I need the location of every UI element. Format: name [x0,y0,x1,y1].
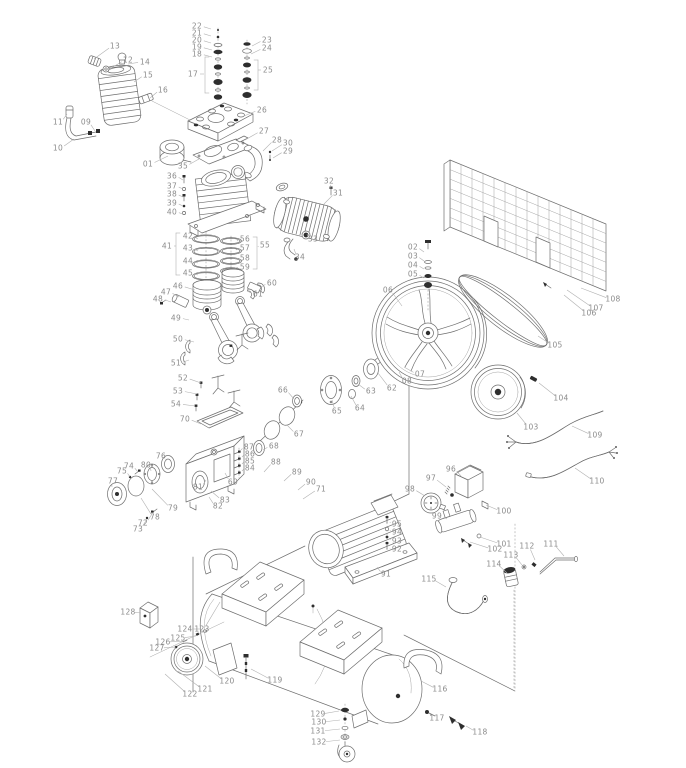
part-label-81: 81 [193,483,203,491]
part-label-39: 39 [167,199,177,207]
part-label-44: 44 [183,257,193,265]
part-label-61: 61 [253,290,263,298]
part-label-128: 128 [120,608,135,616]
part-label-26: 26 [257,106,267,114]
part-label-66: 66 [278,386,288,394]
part-label-121: 121 [197,685,212,693]
part-label-38: 38 [167,190,177,198]
part-label-90: 90 [306,478,316,486]
part-label-15: 15 [143,71,153,79]
part-label-43: 43 [183,244,193,252]
part-label-70: 70 [180,415,190,423]
part-label-91: 91 [381,570,391,578]
part-label-73: 73 [133,525,143,533]
part-label-49: 49 [171,314,181,322]
part-label-88: 88 [271,458,281,466]
part-label-64: 64 [355,404,365,412]
part-label-34: 34 [295,253,305,261]
part-label-48: 48 [153,295,163,303]
part-label-16: 16 [158,86,168,94]
part-label-45: 45 [183,269,193,277]
part-label-115: 115 [421,575,436,583]
part-label-114: 114 [486,560,501,568]
part-label-68: 68 [269,442,279,450]
part-label-63: 63 [366,387,376,395]
part-label-07: 07 [415,370,425,378]
part-label-109: 109 [587,431,602,439]
part-label-40: 40 [167,208,177,216]
part-label-107: 107 [588,304,603,312]
part-label-123: 123 [194,625,209,633]
part-label-10: 10 [53,144,63,152]
part-label-119: 119 [267,676,282,684]
part-label-100: 100 [496,507,511,515]
part-label-87: 87 [244,443,254,451]
part-label-59: 59 [240,263,250,271]
part-label-20: 20 [192,36,202,44]
part-label-97: 97 [426,474,436,482]
part-label-60: 60 [267,279,277,287]
part-label-57: 57 [240,244,250,252]
part-label-28: 28 [272,136,282,144]
part-label-31: 31 [333,189,343,197]
part-label-41: 41 [162,242,172,250]
part-label-120: 120 [219,677,234,685]
part-label-76: 76 [156,452,166,460]
part-label-08: 08 [402,377,412,385]
part-label-131: 131 [310,727,325,735]
part-label-11: 11 [53,118,63,126]
part-label-13: 13 [110,42,120,50]
part-label-99: 99 [432,512,442,520]
part-label-111: 111 [543,540,558,548]
part-label-14: 14 [140,58,150,66]
part-label-02: 02 [408,243,418,251]
part-label-127: 127 [149,644,164,652]
part-label-113: 113 [503,551,518,559]
part-label-53: 53 [173,387,183,395]
part-label-09: 09 [81,118,91,126]
part-label-58: 58 [240,254,250,262]
part-label-46: 46 [173,282,183,290]
part-label-04: 04 [408,261,418,269]
part-label-117: 117 [429,714,444,722]
part-label-01: 01 [143,160,153,168]
part-label-55: 55 [260,241,270,249]
part-label-54: 54 [171,400,181,408]
part-label-32: 32 [324,177,334,185]
part-label-103: 103 [523,423,538,431]
part-label-62: 62 [387,384,397,392]
part-label-130: 130 [311,718,326,726]
part-label-122: 122 [182,690,197,698]
exploded-parts-diagram: 0102030405060708091011121314151617181920… [0,0,686,768]
part-label-124: 124 [177,625,192,633]
part-label-84: 84 [245,464,255,472]
part-label-12: 12 [123,56,133,64]
part-label-67: 67 [294,430,304,438]
part-label-29: 29 [283,147,293,155]
part-label-118: 118 [472,728,487,736]
part-label-79: 79 [168,504,178,512]
part-label-86: 86 [245,450,255,458]
part-label-95: 95 [392,520,402,528]
part-label-92: 92 [392,545,402,553]
part-label-52: 52 [178,374,188,382]
part-label-17: 17 [188,70,198,78]
part-label-80: 80 [141,461,151,469]
part-label-18: 18 [192,50,202,58]
part-label-98: 98 [405,485,415,493]
part-label-77: 77 [108,477,118,485]
part-label-83: 83 [220,496,230,504]
part-label-25: 25 [263,66,273,74]
part-label-108: 108 [605,295,620,303]
part-label-125: 125 [170,634,185,642]
part-label-96: 96 [446,465,456,473]
part-label-05: 05 [408,270,418,278]
part-label-30: 30 [283,139,293,147]
part-label-33: 33 [308,235,318,243]
part-label-65: 65 [332,407,342,415]
part-label-27: 27 [259,127,269,135]
part-label-50: 50 [173,335,183,343]
part-label-110: 110 [589,477,604,485]
part-label-104: 104 [553,394,568,402]
part-label-03: 03 [408,252,418,260]
part-label-102: 102 [487,545,502,553]
part-label-93: 93 [392,537,402,545]
part-label-21: 21 [192,29,202,37]
part-label-89: 89 [292,468,302,476]
part-label-75: 75 [117,467,127,475]
part-label-132: 132 [311,738,326,746]
part-label-42: 42 [183,232,193,240]
part-label-51: 51 [171,359,181,367]
part-label-112: 112 [519,542,534,550]
part-label-116: 116 [432,685,447,693]
part-label-36: 36 [167,172,177,180]
part-label-85: 85 [245,457,255,465]
part-label-78: 78 [150,513,160,521]
part-label-22: 22 [192,22,202,30]
part-label-71: 71 [316,485,326,493]
part-label-19: 19 [192,43,202,51]
part-label-94: 94 [392,528,402,536]
part-label-56: 56 [240,235,250,243]
part-label-35: 35 [178,162,188,170]
part-label-105: 105 [547,341,562,349]
callout-labels: 0102030405060708091011121314151617181920… [0,0,686,768]
part-label-24: 24 [262,44,272,52]
part-label-69: 69 [228,478,238,486]
part-label-06: 06 [383,286,393,294]
